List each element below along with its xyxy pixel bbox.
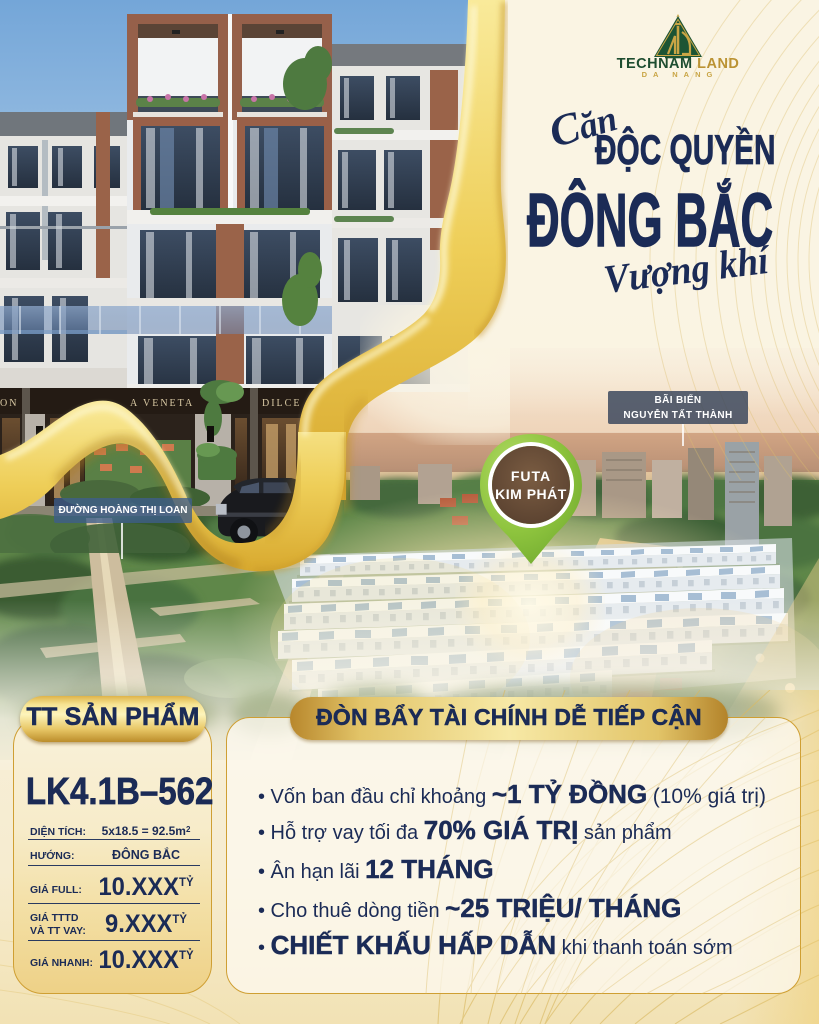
svg-text:FUTA: FUTA <box>511 468 551 484</box>
svg-text:KIM PHÁT: KIM PHÁT <box>495 486 567 502</box>
